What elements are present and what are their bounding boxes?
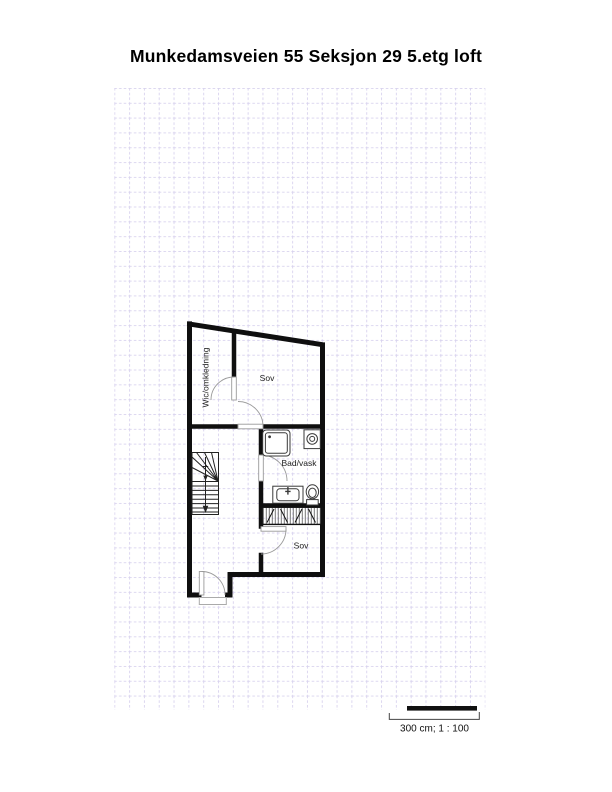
scale-bar-line — [407, 706, 477, 711]
toilet-symbol — [306, 485, 318, 505]
entrance-threshold — [199, 598, 226, 605]
scale-bar: 300 cm; 1 : 100 — [389, 706, 479, 735]
washing-machine-symbol — [304, 430, 320, 449]
floor-plan-page: Munkedamsveien 55 Seksjon 29 5.etg loft — [0, 0, 612, 792]
floor-plan-drawing: Wic/omkledning Sov Bad/vask Sov 300 cm; … — [0, 0, 612, 792]
scale-bar-bracket — [389, 712, 479, 719]
shower-symbol — [263, 430, 290, 456]
wardrobe-symbol — [262, 507, 323, 524]
grid-paper — [114, 88, 485, 710]
scale-bar-label: 300 cm; 1 : 100 — [400, 724, 469, 735]
room-label-sov-upper: Sov — [260, 373, 275, 383]
room-label-sov-lower: Sov — [294, 541, 309, 551]
sink-symbol — [273, 486, 303, 503]
room-label-bad-vask: Bad/vask — [282, 458, 318, 468]
room-label-wic: Wic/omkledning — [201, 347, 211, 407]
